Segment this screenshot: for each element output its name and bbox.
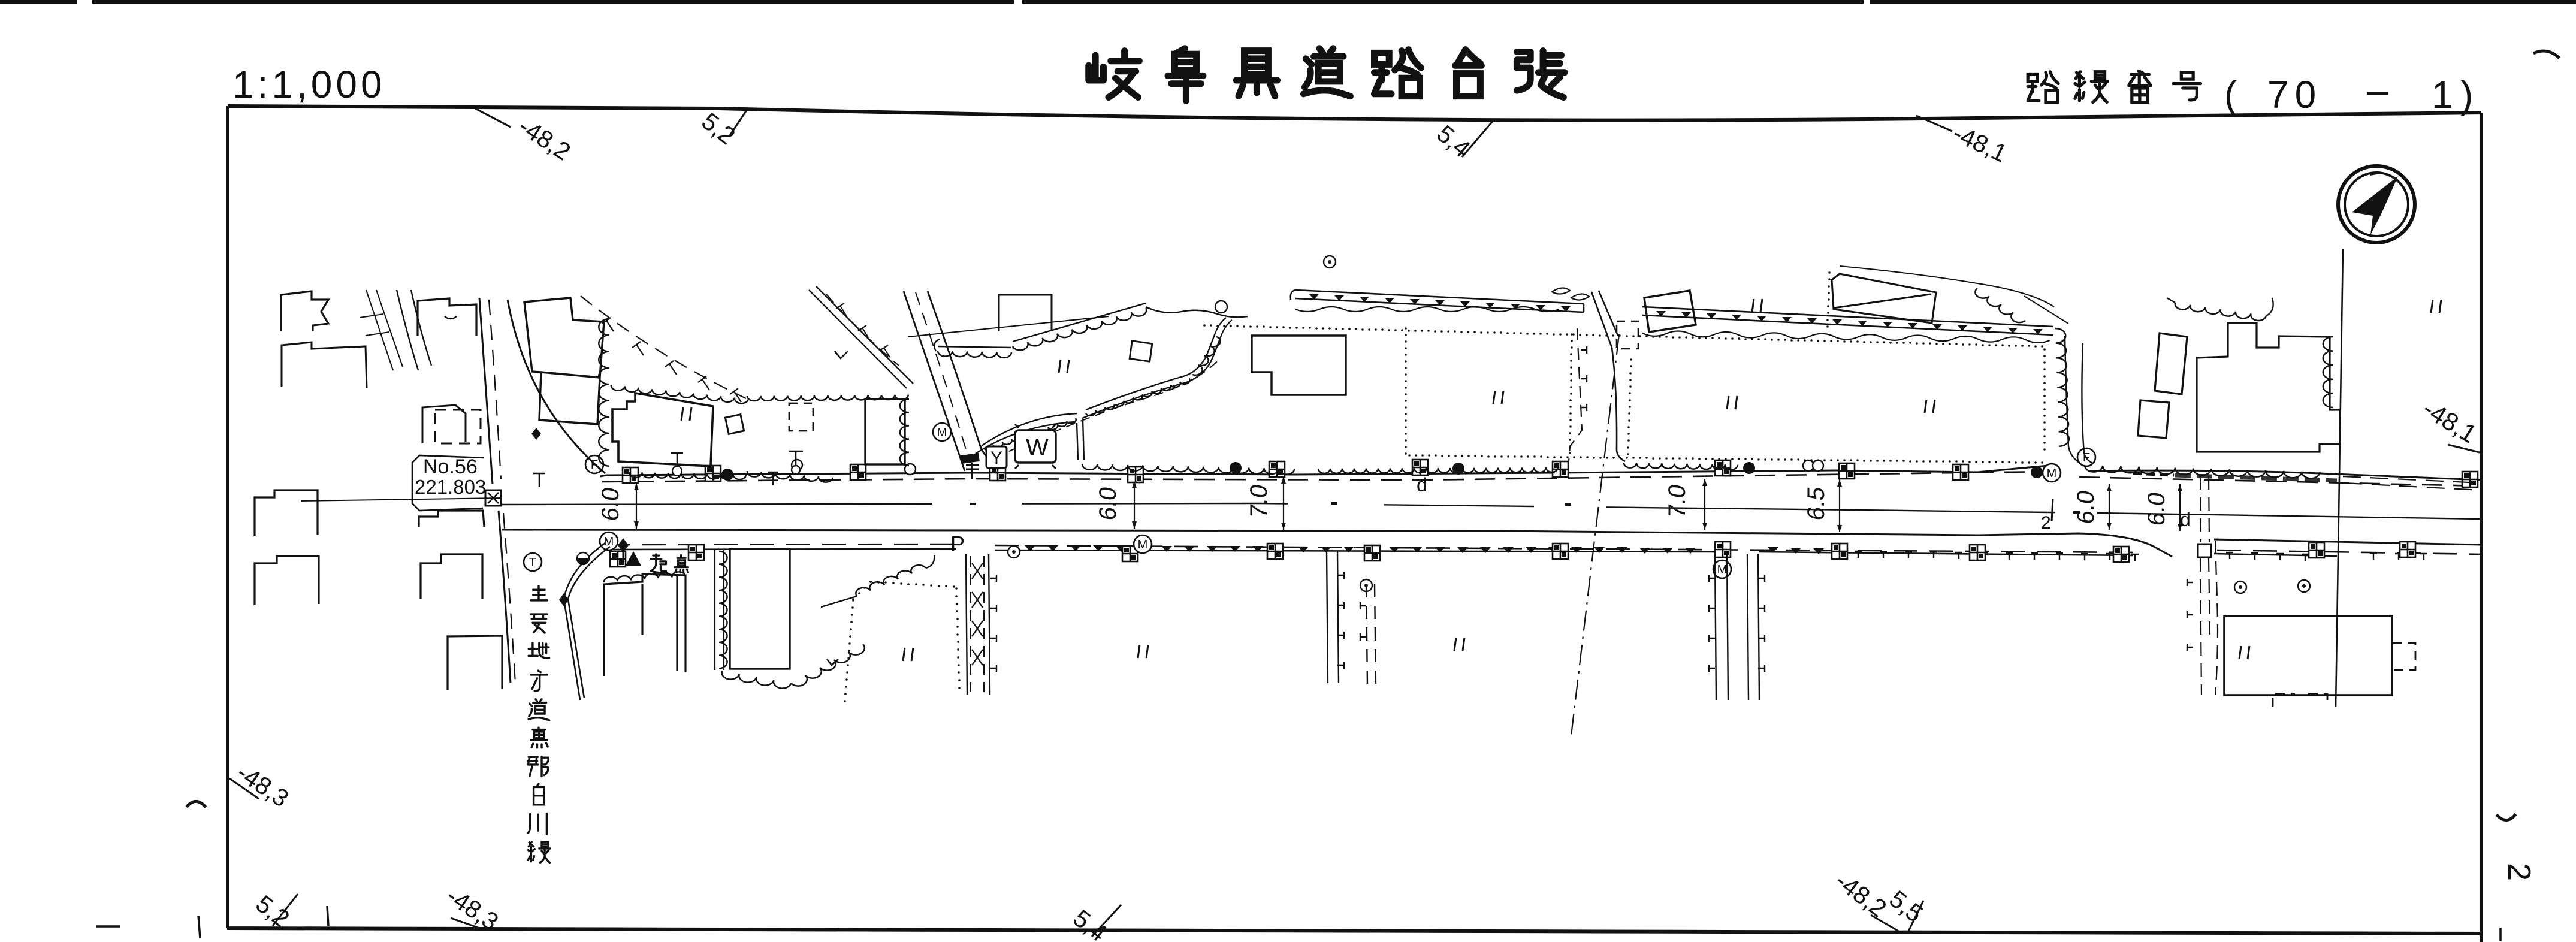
- svg-text:M: M: [1138, 538, 1148, 551]
- svg-text:T: T: [529, 556, 536, 569]
- svg-text:6.5: 6.5: [1802, 485, 1829, 522]
- svg-text:1:1,000: 1:1,000: [232, 63, 386, 106]
- svg-text:d: d: [1417, 474, 1427, 496]
- svg-text:(: (: [2224, 73, 2237, 116]
- svg-text:M: M: [604, 535, 614, 548]
- svg-text:M: M: [1717, 563, 1728, 576]
- svg-text:–: –: [2367, 68, 2388, 111]
- svg-text:M: M: [937, 426, 947, 439]
- svg-text:7.0: 7.0: [1245, 482, 1272, 520]
- svg-text:221.803: 221.803: [415, 476, 486, 498]
- svg-text:70: 70: [2267, 73, 2322, 116]
- svg-text:No.56: No.56: [423, 455, 478, 478]
- svg-text:6.0: 6.0: [1094, 485, 1121, 522]
- svg-text:6.0: 6.0: [597, 485, 624, 523]
- svg-text:): ): [2460, 73, 2473, 116]
- svg-text:W: W: [1026, 434, 1049, 461]
- svg-text:7.0: 7.0: [1663, 482, 1690, 520]
- svg-text:P: P: [950, 532, 965, 556]
- svg-text:d: d: [2180, 509, 2191, 530]
- svg-text:Y: Y: [990, 448, 1002, 468]
- svg-text:2: 2: [2501, 863, 2537, 881]
- svg-text:M: M: [2047, 467, 2057, 480]
- svg-text:2: 2: [2041, 513, 2051, 533]
- svg-text:6.0: 6.0: [2143, 490, 2170, 527]
- svg-text:6.0: 6.0: [2072, 488, 2099, 526]
- svg-text:1: 1: [2432, 73, 2453, 116]
